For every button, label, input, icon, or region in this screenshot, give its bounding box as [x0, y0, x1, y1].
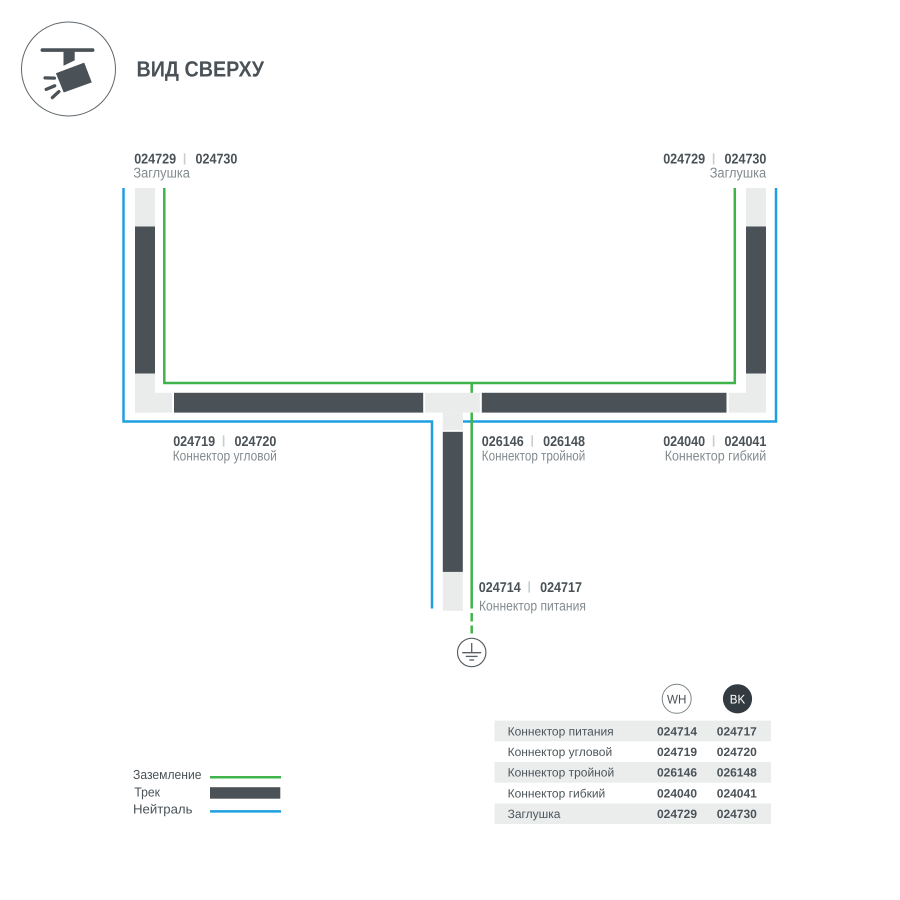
- svg-text:Коннектор питания: Коннектор питания: [508, 724, 614, 738]
- svg-text:Коннектор питания: Коннектор питания: [479, 598, 586, 614]
- svg-text:Заглушка: Заглушка: [508, 807, 561, 821]
- svg-text:024714: 024714: [479, 580, 521, 596]
- svg-text:Коннектор тройной: Коннектор тройной: [508, 766, 615, 780]
- svg-text:BK: BK: [730, 692, 746, 706]
- svg-text:024729: 024729: [663, 152, 705, 168]
- svg-text:Заглушка: Заглушка: [133, 166, 190, 182]
- svg-text:Коннектор тройной: Коннектор тройной: [482, 449, 586, 465]
- svg-text:Коннектор угловой: Коннектор угловой: [173, 449, 277, 465]
- svg-text:Коннектор угловой: Коннектор угловой: [508, 745, 613, 759]
- svg-text:024714: 024714: [657, 724, 697, 738]
- svg-text:024730: 024730: [717, 807, 757, 821]
- svg-text:024719: 024719: [173, 434, 215, 450]
- svg-text:024717: 024717: [717, 724, 757, 738]
- svg-text:ВИД СВЕРХУ: ВИД СВЕРХУ: [137, 57, 265, 82]
- svg-text:024041: 024041: [725, 434, 767, 450]
- svg-text:024717: 024717: [540, 580, 582, 596]
- svg-text:024041: 024041: [717, 786, 757, 800]
- svg-text:026148: 026148: [717, 766, 757, 780]
- svg-text:024730: 024730: [196, 152, 238, 168]
- svg-text:026148: 026148: [543, 434, 585, 450]
- svg-text:Заземление: Заземление: [133, 767, 202, 782]
- svg-text:024720: 024720: [717, 745, 757, 759]
- svg-text:024729: 024729: [657, 807, 697, 821]
- svg-text:024040: 024040: [663, 434, 705, 450]
- svg-text:Трек: Трек: [134, 784, 160, 799]
- svg-text:Заглушка: Заглушка: [710, 166, 767, 182]
- svg-text:024040: 024040: [657, 786, 697, 800]
- svg-text:026146: 026146: [657, 766, 697, 780]
- svg-text:024719: 024719: [657, 745, 697, 759]
- svg-text:Коннектор гибкий: Коннектор гибкий: [665, 449, 767, 465]
- svg-text:Нейтраль: Нейтраль: [133, 801, 193, 816]
- svg-text:024720: 024720: [235, 434, 277, 450]
- svg-text:Коннектор гибкий: Коннектор гибкий: [508, 786, 606, 800]
- svg-text:WH: WH: [667, 692, 686, 706]
- svg-text:026146: 026146: [482, 434, 524, 450]
